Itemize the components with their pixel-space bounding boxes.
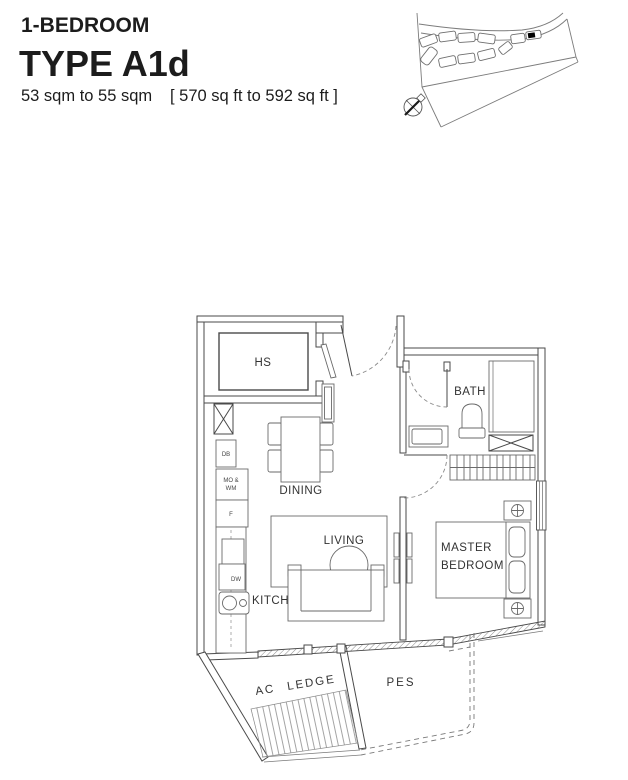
hs-door-leaf (321, 344, 336, 378)
entrance-door-swing (352, 326, 396, 376)
bath-door-jamb (403, 361, 409, 372)
bedroom-right-window (537, 481, 547, 530)
band-mullion-3 (444, 637, 453, 647)
bedroom-door-swing (404, 455, 447, 498)
mo-wm-label-1: MO & (223, 478, 238, 484)
pillow (509, 561, 525, 593)
acledge-hatch (251, 690, 358, 757)
mo-wm-label-2: WM (226, 486, 237, 492)
wall-acledge-left (198, 652, 268, 761)
living-room: LIVING (271, 516, 387, 621)
bath-door-swing (409, 369, 447, 407)
floor-plan: HS DB MO & WM F DW (197, 316, 546, 762)
service-shafts (214, 404, 533, 451)
sofa (288, 565, 384, 621)
shower (489, 361, 534, 432)
north-compass-icon (404, 94, 425, 116)
shaft-kitchen (214, 404, 233, 434)
entrance-right-column (397, 316, 404, 367)
wall-bath-left (400, 367, 406, 453)
toilet (459, 404, 485, 438)
db-label: DB (222, 452, 230, 458)
master-bedroom-label-2: BEDROOM (441, 560, 504, 572)
dining-chair (268, 423, 282, 445)
band-mullion-2 (337, 644, 345, 653)
dining-chair (319, 450, 333, 472)
wall-bedroom-left (400, 497, 406, 640)
entrance-door (341, 325, 396, 376)
cooktop (219, 592, 249, 614)
foyer-cabinet (322, 384, 334, 422)
unit-type: TYPE A1d (19, 43, 190, 84)
pes-label: PES (386, 677, 415, 689)
pes-boundary-outer (361, 633, 474, 755)
nightstand-lamp (504, 501, 531, 520)
fridge-label: F (229, 512, 233, 518)
washer-cabinet (216, 469, 248, 500)
dining: DINING (268, 417, 333, 497)
site-location-key (404, 13, 578, 127)
dining-chair (319, 423, 333, 445)
dining-label: DINING (279, 485, 322, 497)
floor-plan-page: 1-BEDROOM TYPE A1d 53 sqm to 55 sqm [ 57… (0, 0, 628, 780)
nightstand-lamp (504, 599, 531, 618)
wall-top-right (404, 348, 545, 355)
wall-left (197, 316, 204, 655)
unit-category: 1-BEDROOM (21, 14, 149, 37)
living-label: LIVING (324, 535, 365, 547)
living-sliding-door-band (258, 639, 448, 657)
area-metric: 53 sqm to 55 sqm (21, 87, 152, 105)
site-highlighted-unit (526, 30, 542, 40)
header: 1-BEDROOM TYPE A1d 53 sqm to 55 sqm [ 57… (19, 14, 338, 105)
dw-label: DW (231, 577, 241, 583)
entrance-door-leaf (341, 325, 352, 376)
pes-boundary-inner (360, 634, 470, 750)
wall-hs-corner (316, 322, 343, 333)
dining-chair (268, 450, 282, 472)
pillow (509, 527, 525, 557)
shaft-bath (489, 435, 533, 451)
band-mullion-1 (304, 645, 312, 654)
wall-hs-bottom (204, 396, 323, 403)
bathroom: BATH (409, 361, 534, 447)
wardrobe (450, 455, 535, 480)
master-bedroom-label-1: MASTER (441, 542, 492, 554)
bath-vanity (409, 426, 448, 447)
area-imperial: [ 570 sq ft to 592 sq ft ] (170, 87, 338, 105)
hs-label: HS (255, 357, 272, 369)
wall-top-left (197, 316, 343, 322)
pes-top-dashed (449, 647, 470, 651)
dining-table (281, 417, 320, 482)
kitchen-sink (222, 539, 244, 564)
site-roads (417, 13, 578, 127)
bath-label: BATH (454, 386, 486, 398)
